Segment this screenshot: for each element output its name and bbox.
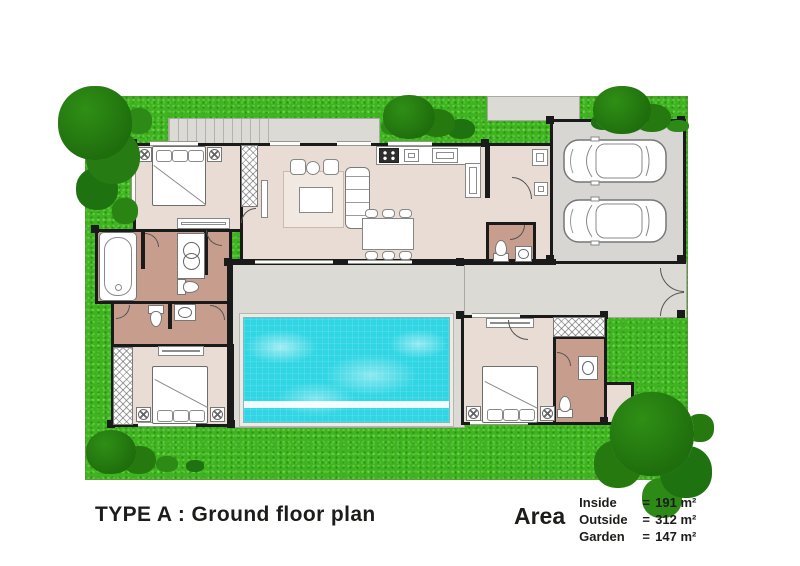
blanket-fold: [485, 381, 538, 409]
sink-icon: [515, 246, 532, 262]
car-icon: [562, 136, 668, 186]
window: [337, 141, 371, 146]
kitchen-sink-icon: [404, 149, 419, 162]
pillow-icon: [519, 409, 535, 421]
toilet-icon: [177, 280, 199, 296]
toilet-icon: [147, 305, 163, 327]
window: [270, 141, 300, 146]
closet-strip: [113, 347, 133, 425]
bush-northeast: [593, 86, 651, 134]
bed-icon: [482, 366, 538, 423]
ac-vent-icon: [540, 406, 555, 421]
sink-icon: [578, 356, 598, 380]
pillow-icon: [173, 410, 189, 422]
appliance-icon: [432, 148, 458, 163]
area-row-equals: =: [637, 494, 655, 511]
area-legend-label: Area: [514, 503, 565, 530]
area-row-name: Inside: [579, 494, 637, 511]
coffee-table-icon: [299, 187, 333, 213]
toilet-icon: [558, 396, 574, 418]
tree-southeast: [610, 392, 694, 476]
pillow-icon: [503, 409, 519, 421]
chair-icon: [365, 209, 378, 218]
pillow-icon: [157, 410, 173, 422]
column: [227, 420, 235, 428]
ac-vent-icon: [466, 406, 481, 421]
blanket-fold: [153, 165, 206, 205]
window: [131, 160, 136, 204]
column: [546, 116, 554, 124]
wall: [485, 143, 490, 198]
dresser-icon: [158, 346, 204, 356]
side-table-icon: [306, 161, 320, 175]
plan-title: TYPE A : Ground floor plan: [95, 503, 376, 527]
bed-icon: [152, 146, 206, 206]
pillow-icon: [156, 150, 172, 162]
dining-table-icon: [362, 218, 414, 250]
pillow-icon: [188, 150, 204, 162]
tv-console-icon: [261, 180, 268, 218]
floor-plan: TYPE A : Ground floor plan Area Inside =…: [0, 0, 800, 566]
closet-strip: [241, 145, 258, 207]
pillow-icon: [487, 409, 503, 421]
sliding-door: [348, 260, 412, 264]
column: [456, 311, 464, 319]
wall: [168, 301, 172, 329]
column: [129, 139, 137, 147]
ac-vent-icon: [210, 407, 225, 422]
area-row-value: 312 m²: [655, 511, 696, 528]
tree-northwest: [58, 86, 132, 160]
wall: [227, 262, 233, 428]
chair-icon: [382, 209, 395, 218]
area-row-value: 147 m²: [655, 528, 696, 545]
area-row-name: Outside: [579, 511, 637, 528]
stove-icon: [379, 148, 399, 163]
area-row-name: Garden: [579, 528, 637, 545]
area-row-equals: =: [637, 528, 655, 545]
driveway: [464, 262, 687, 318]
counter-leg: [465, 163, 481, 198]
chair-icon: [382, 251, 395, 260]
ac-vent-icon: [136, 407, 151, 422]
pillow-icon: [172, 150, 188, 162]
bush-southwest: [86, 430, 136, 474]
area-legend-rows: Inside = 191 m² Outside = 312 m² Garden …: [579, 494, 696, 545]
toilet-icon: [494, 241, 510, 262]
pillow-icon: [189, 410, 205, 422]
water-heater-icon: [532, 149, 548, 166]
column: [224, 258, 232, 266]
column: [456, 258, 464, 266]
car-icon: [562, 196, 668, 246]
column: [481, 139, 489, 147]
area-legend: Area Inside = 191 m² Outside = 312 m² Ga…: [514, 494, 696, 545]
column: [91, 225, 99, 233]
dresser-icon: [177, 218, 230, 229]
blanket-fold: [155, 379, 208, 408]
column: [677, 116, 685, 124]
column: [600, 417, 608, 425]
column: [546, 255, 554, 263]
bathtub-icon: [99, 232, 137, 301]
chair-icon: [365, 251, 378, 260]
bed-icon: [152, 366, 208, 424]
pool-step: [244, 401, 449, 408]
ac-vent-icon: [137, 147, 152, 162]
armchair-icon: [290, 159, 306, 175]
side-pad: [487, 96, 580, 121]
area-row-value: 191 m²: [655, 494, 696, 511]
chair-icon: [399, 251, 412, 260]
swimming-pool: [243, 317, 450, 423]
column: [677, 255, 685, 263]
double-sink-icon: [177, 233, 205, 279]
armchair-icon: [323, 159, 339, 175]
sliding-door: [255, 260, 333, 264]
chair-icon: [399, 209, 412, 218]
sink-icon: [174, 304, 196, 321]
water-heater-icon: [534, 182, 548, 196]
wardrobe-strip: [553, 317, 605, 337]
area-row-equals: =: [637, 511, 655, 528]
ac-vent-icon: [207, 147, 222, 162]
bush-north: [383, 95, 435, 139]
